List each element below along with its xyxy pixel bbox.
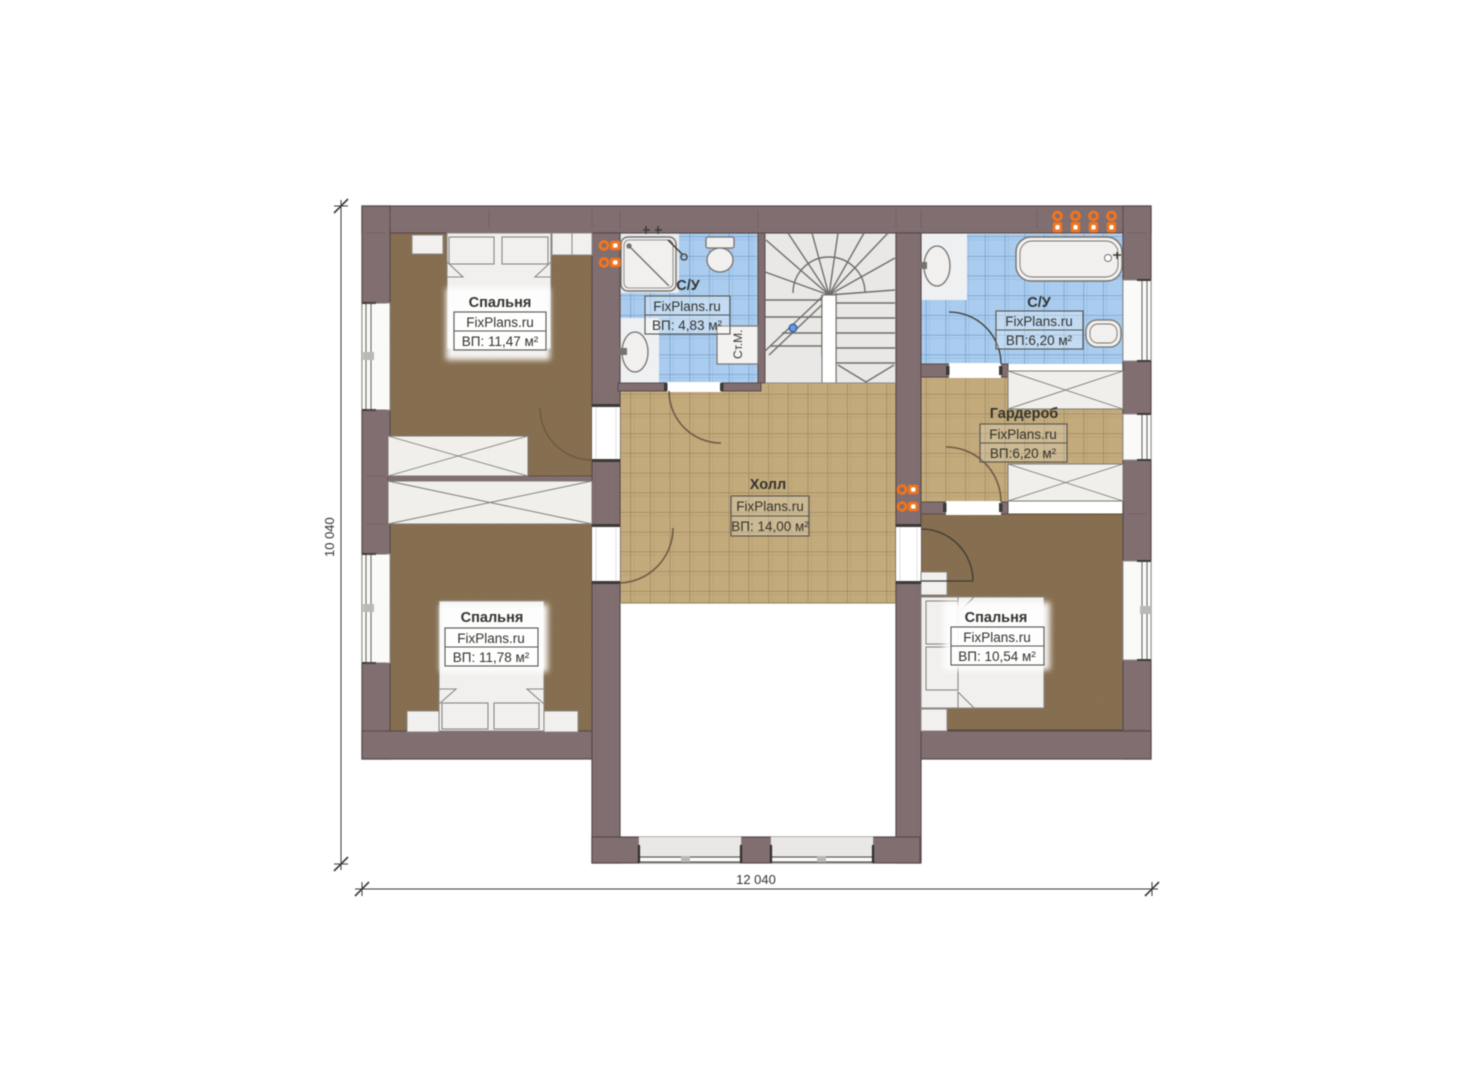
svg-text:ВП: 11,78 м²: ВП: 11,78 м² (453, 650, 530, 665)
svg-text:FixPlans.ru: FixPlans.ru (653, 299, 721, 314)
svg-text:Спальня: Спальня (965, 610, 1028, 626)
svg-text:12 040: 12 040 (736, 872, 776, 887)
svg-text:FixPlans.ru: FixPlans.ru (963, 630, 1031, 645)
svg-text:ВП:6,20 м²: ВП:6,20 м² (1006, 333, 1073, 348)
svg-text:С/У: С/У (1027, 295, 1052, 311)
svg-text:ВП: 11,47 м²: ВП: 11,47 м² (462, 334, 539, 349)
svg-text:Холл: Холл (750, 477, 786, 493)
svg-text:ВП: 14,00 м²: ВП: 14,00 м² (731, 519, 809, 534)
svg-text:FixPlans.ru: FixPlans.ru (736, 499, 804, 514)
svg-text:FixPlans.ru: FixPlans.ru (989, 427, 1057, 442)
svg-text:ВП: 10,54 м²: ВП: 10,54 м² (958, 649, 1036, 664)
svg-text:FixPlans.ru: FixPlans.ru (457, 631, 525, 646)
svg-text:FixPlans.ru: FixPlans.ru (466, 315, 534, 330)
svg-text:Спальня: Спальня (461, 610, 524, 626)
svg-text:Спальня: Спальня (469, 295, 532, 311)
svg-text:Гардероб: Гардероб (990, 406, 1059, 422)
svg-text:10 040: 10 040 (322, 517, 337, 557)
svg-text:ВП:6,20 м²: ВП:6,20 м² (990, 446, 1057, 461)
svg-text:FixPlans.ru: FixPlans.ru (1005, 314, 1073, 329)
svg-text:ВП: 4,83 м²: ВП: 4,83 м² (652, 318, 723, 333)
svg-text:Ст.М.: Ст.М. (731, 330, 745, 360)
svg-text:С/У: С/У (676, 278, 701, 294)
